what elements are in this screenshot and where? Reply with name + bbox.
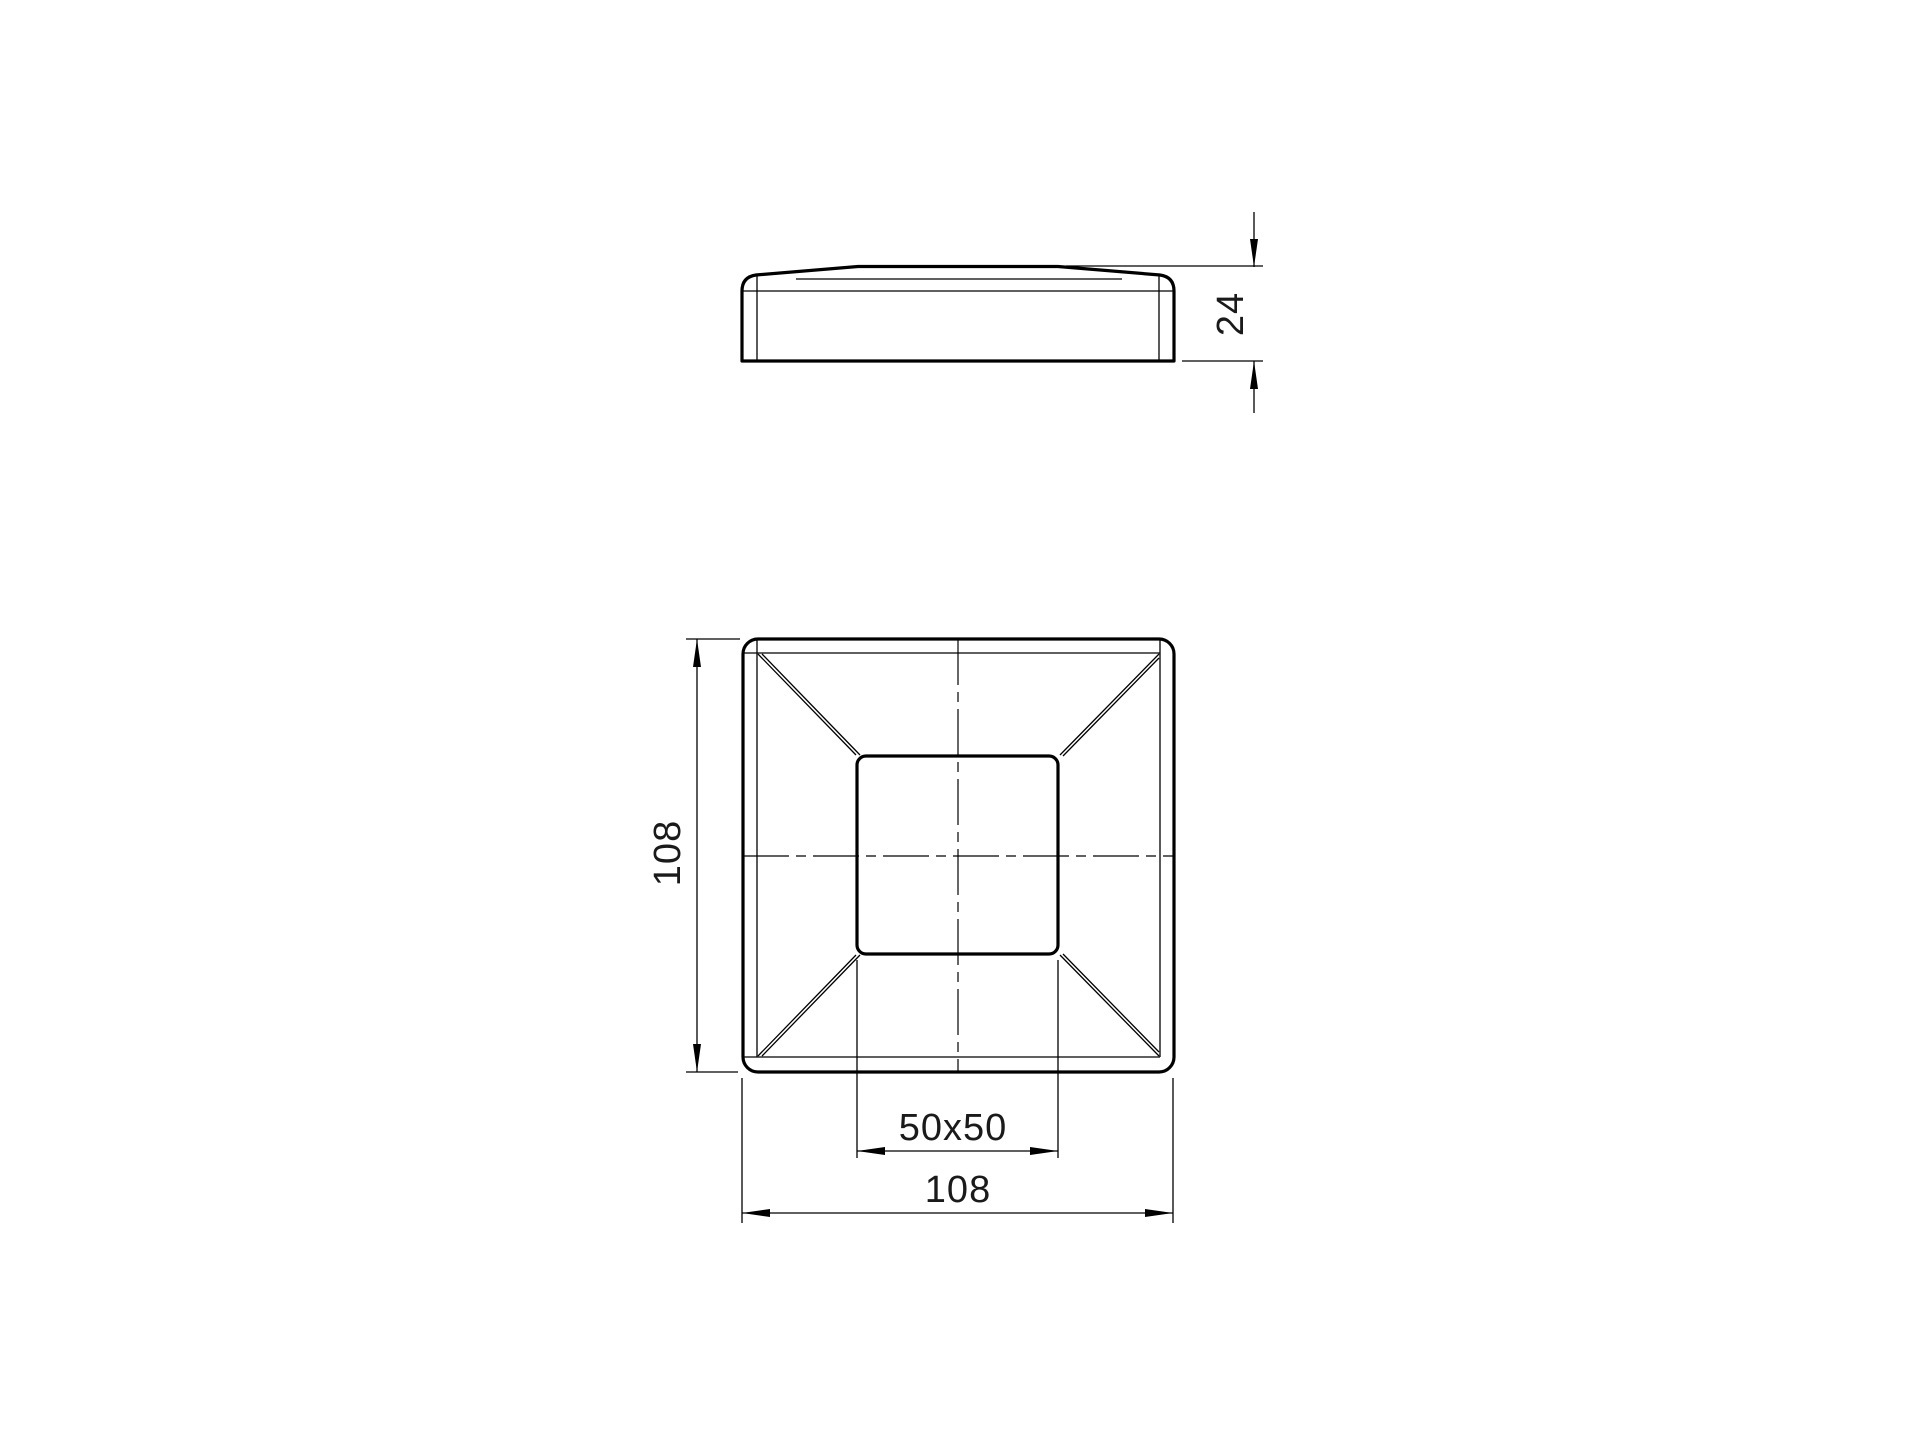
arrowhead-right-icon [1030, 1147, 1058, 1155]
dimension-cap-height: 24 [1066, 212, 1263, 413]
hip-bottom-right-a [1060, 955, 1159, 1056]
dimension-label-inner-square: 50x50 [899, 1107, 1008, 1149]
hip-bottom-left-b [762, 955, 860, 1056]
dimension-label-cap-height: 24 [1210, 292, 1252, 336]
hip-top-right-b [1063, 658, 1159, 756]
hip-top-right-a [1060, 654, 1159, 755]
hip-bottom-right-b [1063, 954, 1159, 1052]
hip-top-left-b [762, 654, 860, 755]
dimension-label-overall-height: 108 [647, 820, 689, 886]
dimension-overall-height: 108 [647, 639, 740, 1072]
hip-top-left-a [758, 654, 856, 755]
technical-drawing-canvas: 24 [0, 0, 1919, 1440]
side-view-outline [742, 267, 1174, 362]
drawing-sheet: 24 [0, 0, 1919, 1440]
hip-bottom-left-a [758, 955, 856, 1056]
arrowhead-left-icon [857, 1147, 885, 1155]
side-view [742, 267, 1174, 362]
dimension-label-overall-width: 108 [925, 1169, 991, 1211]
arrowhead-up-icon [1250, 361, 1258, 389]
arrowhead-left-icon [742, 1209, 770, 1217]
arrowhead-down-icon [693, 1044, 701, 1072]
top-view [743, 639, 1174, 1072]
arrowhead-right-icon [1145, 1209, 1173, 1217]
top-view-inner-offset [744, 640, 1160, 1057]
arrowhead-down-icon [1250, 239, 1258, 267]
arrowhead-up-icon [693, 639, 701, 667]
